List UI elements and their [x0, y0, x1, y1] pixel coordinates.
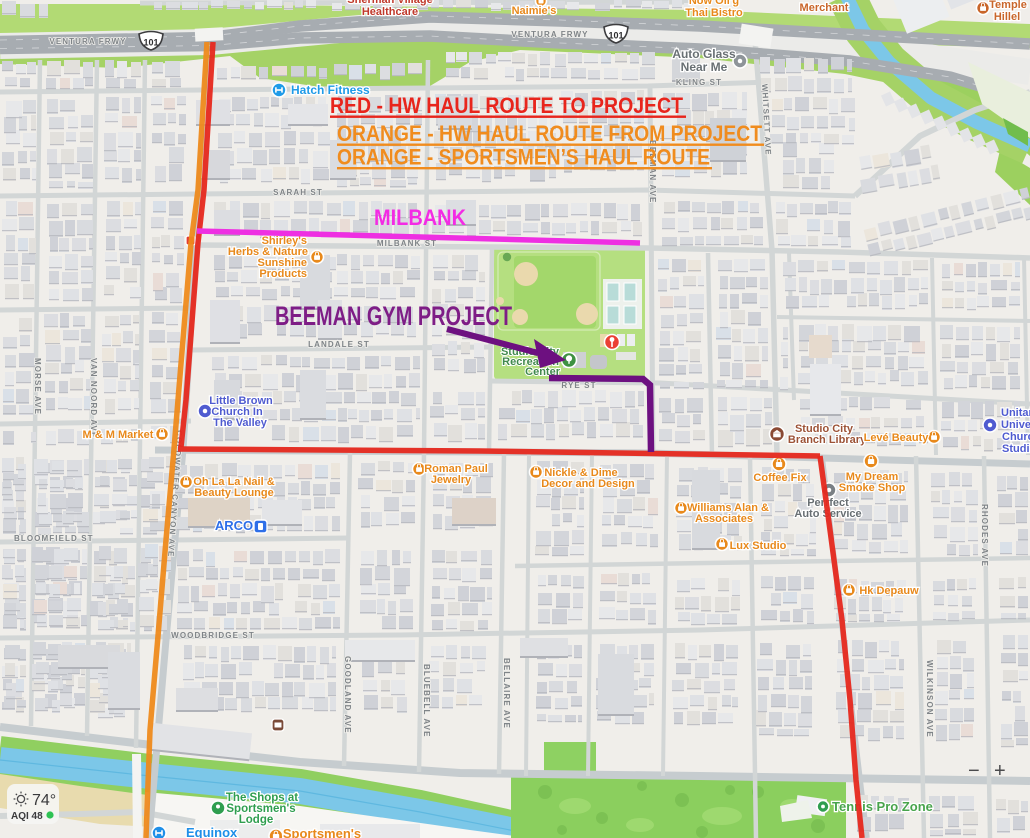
svg-text:AQI 48: AQI 48: [11, 811, 43, 822]
svg-text:Hk Depauw: Hk Depauw: [859, 585, 919, 597]
svg-text:Healthcare: Healthcare: [362, 6, 418, 18]
svg-text:GOODLAND AVE: GOODLAND AVE: [343, 656, 352, 734]
svg-text:VENTURA FRWY: VENTURA FRWY: [49, 37, 126, 46]
svg-text:WILKINSON AVE: WILKINSON AVE: [925, 660, 934, 738]
svg-text:Hillel: Hillel: [994, 11, 1020, 23]
svg-text:BELLAIRE AVE: BELLAIRE AVE: [502, 658, 511, 729]
svg-text:Merchant: Merchant: [800, 2, 849, 14]
svg-text:Branch Library: Branch Library: [788, 434, 867, 446]
svg-text:−: −: [968, 760, 980, 782]
svg-text:M & M Market: M & M Market: [83, 429, 154, 441]
svg-text:Unitari: Unitari: [1001, 407, 1030, 419]
svg-text:KLING ST: KLING ST: [676, 78, 722, 87]
svg-text:Jewelry: Jewelry: [431, 474, 472, 486]
svg-text:RED - HW HAUL ROUTE TO PROJECT: RED - HW HAUL ROUTE TO PROJECT: [330, 93, 683, 118]
svg-text:Naimie's: Naimie's: [512, 5, 557, 17]
svg-text:Associates: Associates: [695, 513, 753, 525]
svg-text:Lux Studio: Lux Studio: [730, 540, 787, 552]
svg-text:Levé Beauty: Levé Beauty: [864, 432, 930, 444]
svg-text:ORANGE - SPORTSMEN’S HAUL ROUT: ORANGE - SPORTSMEN’S HAUL ROUTE: [337, 145, 710, 170]
svg-text:The Valley: The Valley: [213, 417, 268, 429]
svg-text:Church: Church: [1002, 431, 1030, 443]
svg-text:BEEMAN GYM PROJECT: BEEMAN GYM PROJECT: [275, 301, 512, 331]
svg-text:Now Oil'g: Now Oil'g: [689, 0, 739, 7]
svg-text:MILBANK: MILBANK: [374, 205, 466, 230]
svg-text:Products: Products: [259, 268, 307, 280]
svg-text:Sportsmen's: Sportsmen's: [283, 826, 361, 838]
svg-text:BLUEBELL AVE: BLUEBELL AVE: [422, 664, 431, 738]
svg-text:ORANGE - HW HAUL ROUTE FROM PR: ORANGE - HW HAUL ROUTE FROM PROJECT: [337, 121, 762, 146]
svg-text:Univers: Univers: [1001, 419, 1030, 431]
svg-text:Lodge: Lodge: [239, 814, 274, 826]
svg-text:MORSE AVE: MORSE AVE: [33, 358, 42, 415]
svg-text:Smoke Shop: Smoke Shop: [839, 482, 906, 494]
svg-text:RHODES AVE: RHODES AVE: [980, 504, 989, 567]
svg-text:BLOOMFIELD ST: BLOOMFIELD ST: [14, 534, 94, 543]
svg-text:101: 101: [608, 31, 623, 41]
svg-text:Thai Bistro: Thai Bistro: [685, 7, 743, 19]
svg-text:74°: 74°: [32, 792, 56, 809]
svg-text:WOODBRIDGE ST: WOODBRIDGE ST: [171, 631, 255, 640]
svg-text:Decor and Design: Decor and Design: [541, 478, 635, 490]
svg-text:VAN NOORD AVE: VAN NOORD AVE: [89, 358, 98, 438]
svg-text:Equinox: Equinox: [186, 825, 238, 838]
svg-text:SARAH ST: SARAH ST: [273, 188, 323, 197]
svg-text:Temple: Temple: [989, 0, 1027, 11]
svg-text:ARCO: ARCO: [215, 518, 253, 533]
svg-text:MILBANK ST: MILBANK ST: [377, 239, 437, 248]
svg-text:Studio: Studio: [1002, 443, 1030, 455]
svg-text:RYE ST: RYE ST: [561, 381, 596, 390]
svg-text:LANDALE ST: LANDALE ST: [308, 340, 370, 349]
svg-text:Auto Glass: Auto Glass: [672, 47, 736, 61]
svg-text:101: 101: [143, 38, 158, 48]
svg-text:+: +: [994, 760, 1006, 782]
svg-text:VENTURA FRWY: VENTURA FRWY: [511, 30, 588, 39]
svg-text:Near Me: Near Me: [681, 60, 728, 74]
svg-text:Coffee Fix: Coffee Fix: [753, 472, 807, 484]
svg-text:Tennis Pro Zone: Tennis Pro Zone: [832, 799, 933, 814]
svg-text:Beauty Lounge: Beauty Lounge: [194, 487, 273, 499]
